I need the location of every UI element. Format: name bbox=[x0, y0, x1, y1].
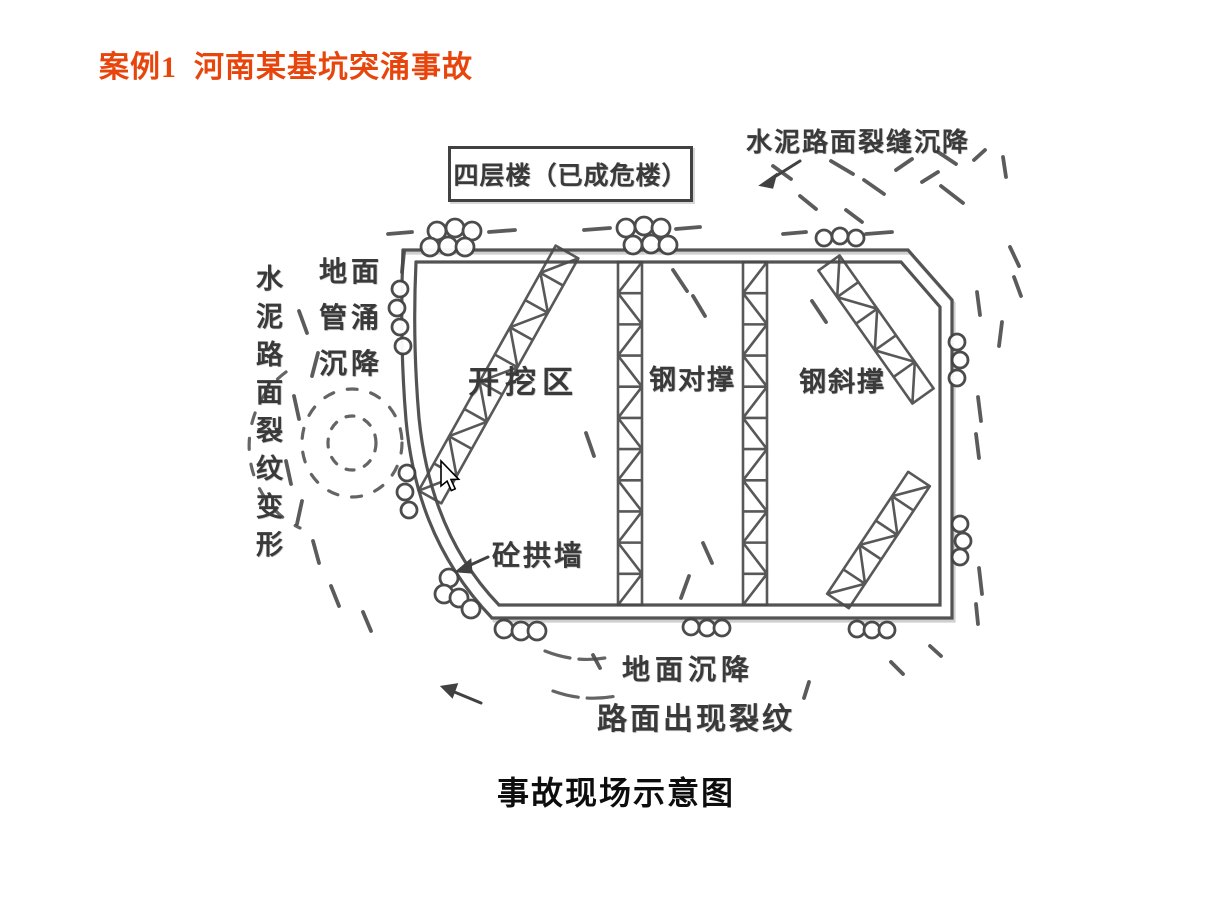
slide-title: 案例1 河南某基坑突涌事故 bbox=[99, 42, 473, 86]
building-label: 四层楼（已成危楼） bbox=[453, 156, 687, 192]
label-steel-diagonal-brace: 钢斜撑 bbox=[799, 360, 886, 399]
label-cement-road-crack-deformation: 水泥路面裂纹变形 bbox=[247, 264, 286, 594]
label-road-surface-cracks: 路面出现裂纹 bbox=[597, 694, 795, 738]
label-ground-settlement: 地面沉降 bbox=[622, 648, 754, 688]
figure-caption: 事故现场示意图 bbox=[497, 768, 735, 814]
mouse-cursor-icon[interactable] bbox=[441, 461, 459, 491]
label-steel-cross-brace: 钢对撑 bbox=[649, 358, 736, 397]
building-box: 四层楼（已成危楼） bbox=[448, 146, 693, 202]
label-cement-road-crack-settlement: 水泥路面裂缝沉降 bbox=[746, 122, 970, 159]
label-concrete-arch-wall: 砼拱墙 bbox=[492, 534, 585, 574]
label-excavation-area: 开挖区 bbox=[468, 357, 579, 402]
label-ground-piping-settlement: 地面管涌沉降 bbox=[317, 249, 385, 387]
